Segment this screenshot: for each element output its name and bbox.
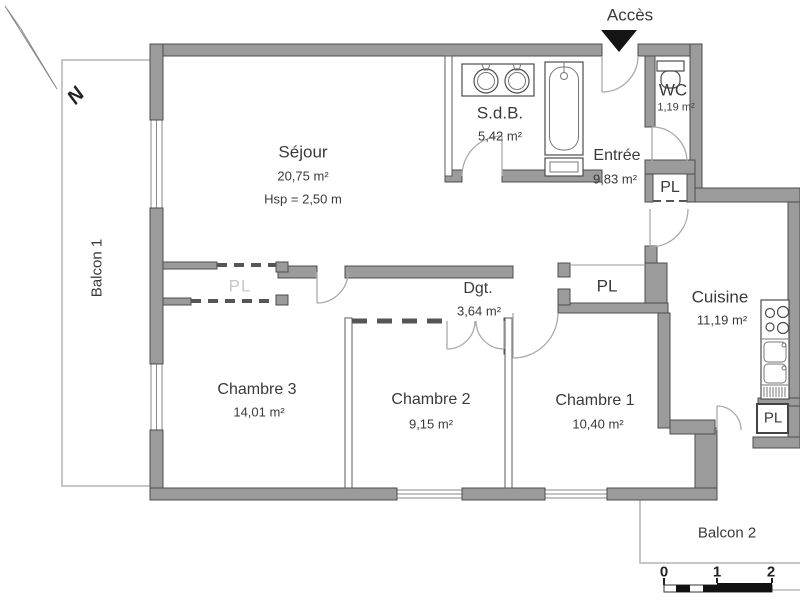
closet-label-cuisine: PL	[764, 411, 782, 426]
room-area-cuisine: 11,19 m²	[697, 314, 747, 327]
room-label-sejour: Séjour	[278, 144, 327, 161]
balcony-1-outline	[62, 60, 150, 486]
room-area-chambre2: 9,15 m²	[409, 418, 453, 431]
closet-label-degagement: PL	[597, 278, 618, 295]
scale-tick-1: 1	[713, 565, 721, 580]
room-label-chambre2: Chambre 2	[391, 392, 470, 408]
room-area-chambre1: 10,40 m²	[572, 418, 623, 431]
double-washbasin-icon	[462, 64, 534, 96]
room-label-cuisine: Cuisine	[692, 289, 749, 306]
room-area-wc: 1,19 m²	[657, 103, 694, 114]
room-label-balcon1: Balcon 1	[90, 239, 105, 297]
scale-tick-0: 0	[660, 565, 668, 580]
room-label-chambre3: Chambre 3	[217, 382, 296, 398]
room-area-entree: 9,83 m²	[593, 173, 637, 186]
walls	[150, 44, 800, 500]
room-label-chambre1: Chambre 1	[555, 393, 634, 409]
room-area-chambre3: 14,01 m²	[233, 406, 284, 419]
scale-bar	[664, 578, 800, 592]
stove-icon	[761, 300, 789, 399]
room-area-degagement: 3,64 m²	[457, 305, 501, 318]
room-label-degagement: Dgt.	[463, 281, 492, 297]
room-label-balcon2: Balcon 2	[698, 526, 756, 541]
closet-label-sejour: PL	[229, 278, 252, 295]
room-area-sdb: 5,42 m²	[478, 130, 522, 143]
entry-arrow-icon	[601, 30, 637, 52]
access-label: Accès	[607, 7, 653, 24]
room-ceiling-sejour: Hsp = 2,50 m	[264, 193, 342, 206]
room-label-wc: WC	[659, 82, 687, 99]
scale-tick-2: 2	[767, 565, 775, 580]
floor-plan: N Accès Séjour 20,75 m² Hsp = 2,50 m S.d…	[0, 0, 800, 600]
room-area-sejour: 20,75 m²	[277, 170, 328, 183]
bathtub-icon	[545, 62, 583, 176]
compass-icon	[5, 6, 57, 89]
closet-label-entree: PL	[660, 180, 680, 196]
room-label-sdb: S.d.B.	[477, 105, 523, 122]
room-label-entree: Entrée	[593, 148, 640, 164]
